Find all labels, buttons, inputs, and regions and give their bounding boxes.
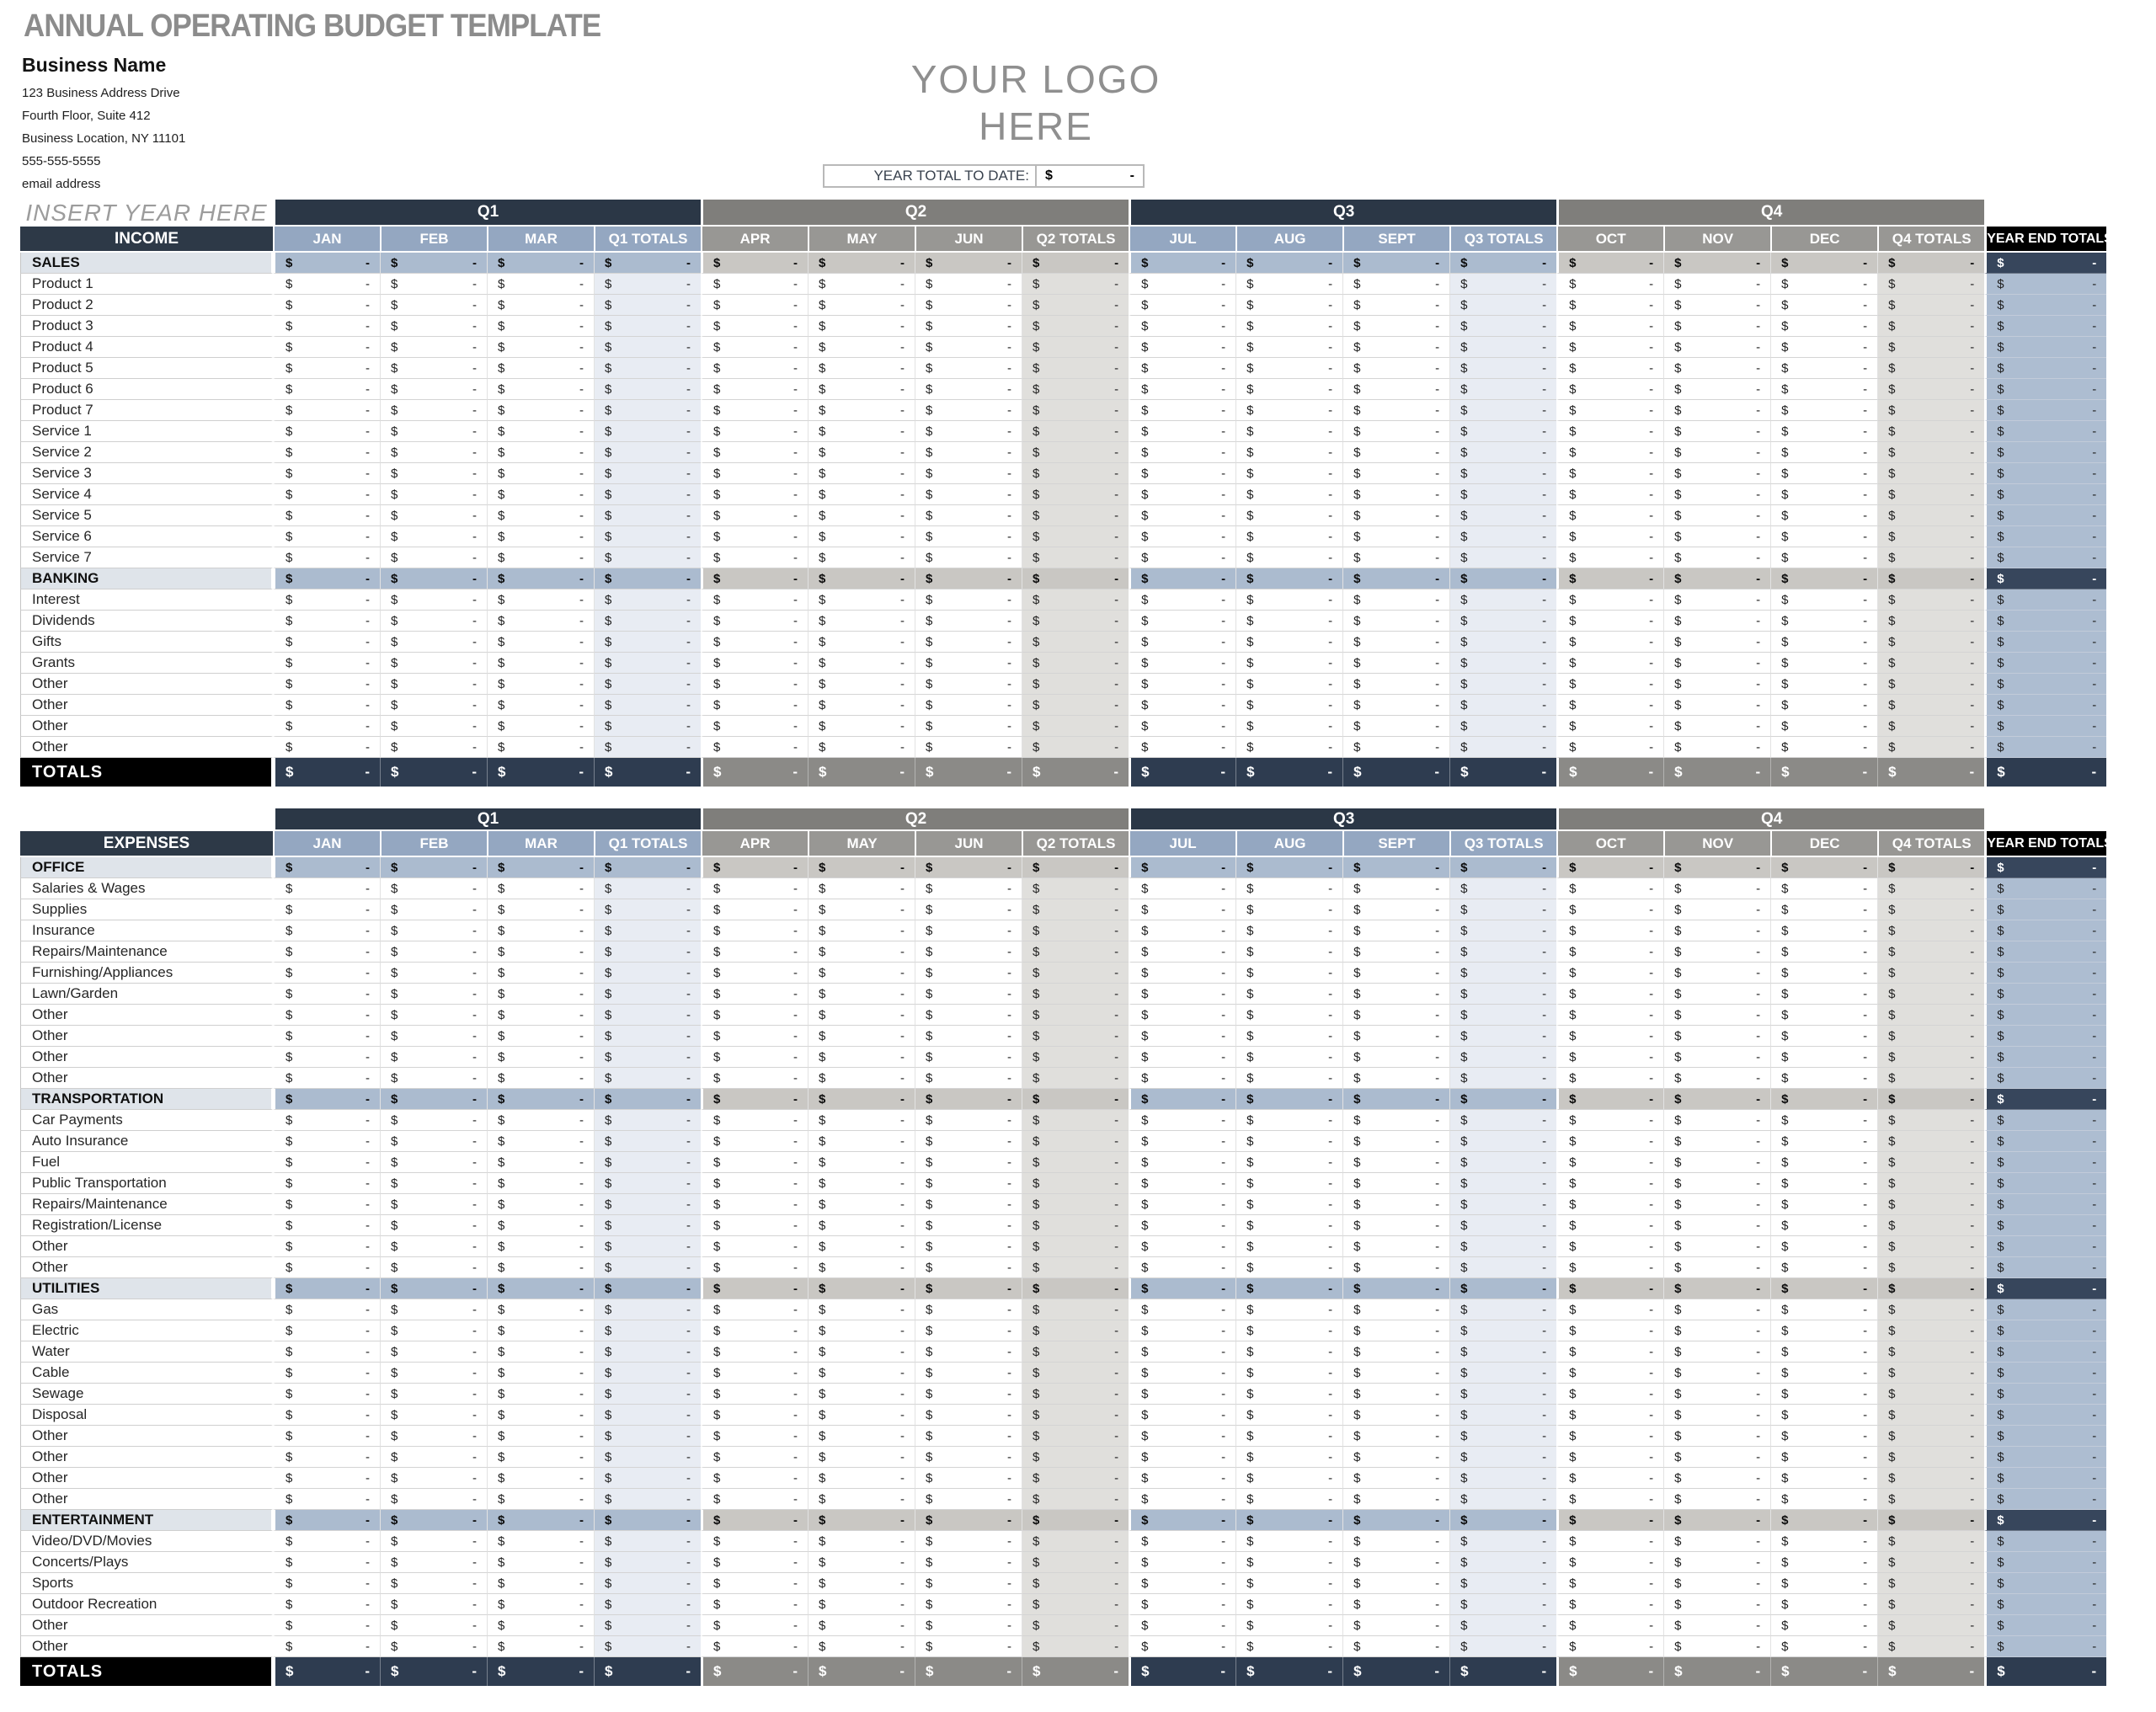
section-money-cell[interactable]: $-: [1129, 1278, 1235, 1299]
money-cell[interactable]: $-: [1556, 421, 1663, 442]
money-cell[interactable]: $-: [1663, 878, 1770, 899]
money-cell[interactable]: $-: [1770, 1384, 1877, 1405]
row-label[interactable]: Cable: [20, 1363, 273, 1384]
section-money-cell[interactable]: $-: [1129, 1089, 1235, 1110]
section-year-end-cell[interactable]: $-: [1984, 253, 2106, 274]
money-cell[interactable]: $-: [380, 547, 487, 568]
row-label[interactable]: Gas: [20, 1299, 273, 1320]
money-cell[interactable]: $-: [1129, 442, 1235, 463]
quarter-total-cell[interactable]: $-: [1877, 984, 1984, 1005]
money-cell[interactable]: $-: [273, 1341, 380, 1363]
section-money-cell[interactable]: $-: [594, 1510, 701, 1531]
quarter-total-cell[interactable]: $-: [1449, 1110, 1556, 1131]
section-money-cell[interactable]: $-: [487, 1510, 594, 1531]
quarter-total-cell[interactable]: $-: [1449, 899, 1556, 920]
quarter-total-cell[interactable]: $-: [1877, 1426, 1984, 1447]
money-cell[interactable]: $-: [1770, 1594, 1877, 1615]
money-cell[interactable]: $-: [487, 963, 594, 984]
money-cell[interactable]: $-: [1663, 1341, 1770, 1363]
quarter-total-cell[interactable]: $-: [594, 295, 701, 316]
quarter-total-cell[interactable]: $-: [1022, 1194, 1129, 1215]
money-cell[interactable]: $-: [1235, 1384, 1342, 1405]
money-cell[interactable]: $-: [273, 1005, 380, 1026]
money-cell[interactable]: $-: [1663, 611, 1770, 632]
quarter-total-cell[interactable]: $-: [1449, 1363, 1556, 1384]
money-cell[interactable]: $-: [808, 1636, 915, 1657]
money-cell[interactable]: $-: [273, 632, 380, 653]
money-cell[interactable]: $-: [701, 1152, 808, 1173]
money-cell[interactable]: $-: [487, 1405, 594, 1426]
money-cell[interactable]: $-: [1342, 1594, 1449, 1615]
money-cell[interactable]: $-: [1556, 1573, 1663, 1594]
money-cell[interactable]: $-: [915, 1447, 1022, 1468]
quarter-total-cell[interactable]: $-: [1449, 1152, 1556, 1173]
row-label[interactable]: Product 1: [20, 274, 273, 295]
section-money-cell[interactable]: $-: [487, 1278, 594, 1299]
money-cell[interactable]: $-: [915, 1194, 1022, 1215]
money-cell[interactable]: $-: [1663, 1615, 1770, 1636]
money-cell[interactable]: $-: [1342, 526, 1449, 547]
money-cell[interactable]: $-: [701, 1531, 808, 1552]
money-cell[interactable]: $-: [380, 526, 487, 547]
money-cell[interactable]: $-: [1342, 963, 1449, 984]
money-cell[interactable]: $-: [701, 1405, 808, 1426]
money-cell[interactable]: $-: [1342, 358, 1449, 379]
money-cell[interactable]: $-: [701, 1341, 808, 1363]
money-cell[interactable]: $-: [1129, 878, 1235, 899]
money-cell[interactable]: $-: [380, 316, 487, 337]
money-cell[interactable]: $-: [701, 1489, 808, 1510]
quarter-total-cell[interactable]: $-: [1022, 463, 1129, 484]
money-cell[interactable]: $-: [701, 379, 808, 400]
quarter-total-cell[interactable]: $-: [1022, 442, 1129, 463]
money-cell[interactable]: $-: [1556, 1594, 1663, 1615]
row-label[interactable]: Gifts: [20, 632, 273, 653]
money-cell[interactable]: $-: [1342, 1405, 1449, 1426]
money-cell[interactable]: $-: [1129, 1299, 1235, 1320]
totals-money-cell[interactable]: $-: [1022, 1657, 1129, 1686]
money-cell[interactable]: $-: [487, 1194, 594, 1215]
row-label[interactable]: Other: [20, 1236, 273, 1257]
quarter-total-cell[interactable]: $-: [1877, 1552, 1984, 1573]
quarter-total-cell[interactable]: $-: [594, 632, 701, 653]
section-money-cell[interactable]: $-: [915, 1089, 1022, 1110]
section-money-cell[interactable]: $-: [808, 857, 915, 878]
section-money-cell[interactable]: $-: [380, 568, 487, 589]
money-cell[interactable]: $-: [915, 984, 1022, 1005]
money-cell[interactable]: $-: [1129, 1110, 1235, 1131]
year-end-cell[interactable]: $-: [1984, 1194, 2106, 1215]
year-end-cell[interactable]: $-: [1984, 878, 2106, 899]
quarter-total-cell[interactable]: $-: [1022, 1173, 1129, 1194]
year-end-cell[interactable]: $-: [1984, 963, 2106, 984]
money-cell[interactable]: $-: [380, 1215, 487, 1236]
row-label[interactable]: Other: [20, 674, 273, 695]
quarter-total-cell[interactable]: $-: [594, 1615, 701, 1636]
money-cell[interactable]: $-: [1556, 274, 1663, 295]
money-cell[interactable]: $-: [1129, 941, 1235, 963]
row-label[interactable]: Electric: [20, 1320, 273, 1341]
money-cell[interactable]: $-: [1342, 274, 1449, 295]
totals-money-cell[interactable]: $-: [594, 758, 701, 787]
totals-money-cell[interactable]: $-: [701, 1657, 808, 1686]
year-end-cell[interactable]: $-: [1984, 1531, 2106, 1552]
money-cell[interactable]: $-: [487, 1068, 594, 1089]
money-cell[interactable]: $-: [808, 611, 915, 632]
money-cell[interactable]: $-: [1342, 400, 1449, 421]
money-cell[interactable]: $-: [808, 1152, 915, 1173]
quarter-total-cell[interactable]: $-: [1449, 1531, 1556, 1552]
money-cell[interactable]: $-: [380, 632, 487, 653]
money-cell[interactable]: $-: [808, 1257, 915, 1278]
quarter-total-cell[interactable]: $-: [1022, 1405, 1129, 1426]
quarter-total-cell[interactable]: $-: [1877, 589, 1984, 611]
quarter-total-cell[interactable]: $-: [1877, 505, 1984, 526]
money-cell[interactable]: $-: [380, 920, 487, 941]
money-cell[interactable]: $-: [487, 379, 594, 400]
money-cell[interactable]: $-: [1235, 1426, 1342, 1447]
money-cell[interactable]: $-: [273, 1615, 380, 1636]
money-cell[interactable]: $-: [915, 526, 1022, 547]
year-end-cell[interactable]: $-: [1984, 1152, 2106, 1173]
money-cell[interactable]: $-: [915, 421, 1022, 442]
money-cell[interactable]: $-: [1663, 1236, 1770, 1257]
section-money-cell[interactable]: $-: [1663, 253, 1770, 274]
money-cell[interactable]: $-: [380, 716, 487, 737]
section-money-cell[interactable]: $-: [273, 1278, 380, 1299]
money-cell[interactable]: $-: [1556, 1236, 1663, 1257]
money-cell[interactable]: $-: [487, 1047, 594, 1068]
money-cell[interactable]: $-: [915, 1426, 1022, 1447]
money-cell[interactable]: $-: [1556, 737, 1663, 758]
quarter-total-cell[interactable]: $-: [1877, 1468, 1984, 1489]
money-cell[interactable]: $-: [1342, 1426, 1449, 1447]
section-money-cell[interactable]: $-: [1022, 1510, 1129, 1531]
section-money-cell[interactable]: $-: [915, 1278, 1022, 1299]
money-cell[interactable]: $-: [273, 1636, 380, 1657]
quarter-total-cell[interactable]: $-: [1877, 442, 1984, 463]
section-money-cell[interactable]: $-: [1770, 253, 1877, 274]
money-cell[interactable]: $-: [808, 1489, 915, 1510]
money-cell[interactable]: $-: [487, 899, 594, 920]
money-cell[interactable]: $-: [1235, 1468, 1342, 1489]
section-money-cell[interactable]: $-: [1877, 1278, 1984, 1299]
year-end-cell[interactable]: $-: [1984, 295, 2106, 316]
quarter-total-cell[interactable]: $-: [594, 1384, 701, 1405]
money-cell[interactable]: $-: [808, 1363, 915, 1384]
money-cell[interactable]: $-: [915, 400, 1022, 421]
section-money-cell[interactable]: $-: [915, 1510, 1022, 1531]
money-cell[interactable]: $-: [1235, 611, 1342, 632]
money-cell[interactable]: $-: [1663, 653, 1770, 674]
section-money-cell[interactable]: $-: [1235, 253, 1342, 274]
business-address-line[interactable]: 123 Business Address Drive: [22, 86, 185, 100]
quarter-total-cell[interactable]: $-: [1449, 505, 1556, 526]
money-cell[interactable]: $-: [1556, 358, 1663, 379]
money-cell[interactable]: $-: [701, 878, 808, 899]
quarter-total-cell[interactable]: $-: [1449, 337, 1556, 358]
money-cell[interactable]: $-: [1235, 1236, 1342, 1257]
row-label[interactable]: Other: [20, 1047, 273, 1068]
money-cell[interactable]: $-: [1129, 1615, 1235, 1636]
money-cell[interactable]: $-: [1556, 316, 1663, 337]
money-cell[interactable]: $-: [487, 1426, 594, 1447]
year-end-cell[interactable]: $-: [1984, 589, 2106, 611]
money-cell[interactable]: $-: [1129, 274, 1235, 295]
quarter-total-cell[interactable]: $-: [1022, 1363, 1129, 1384]
quarter-total-cell[interactable]: $-: [594, 505, 701, 526]
money-cell[interactable]: $-: [1235, 1363, 1342, 1384]
quarter-total-cell[interactable]: $-: [1022, 1447, 1129, 1468]
money-cell[interactable]: $-: [1235, 337, 1342, 358]
money-cell[interactable]: $-: [701, 316, 808, 337]
row-label[interactable]: Dividends: [20, 611, 273, 632]
money-cell[interactable]: $-: [487, 878, 594, 899]
money-cell[interactable]: $-: [487, 547, 594, 568]
quarter-total-cell[interactable]: $-: [1877, 1489, 1984, 1510]
money-cell[interactable]: $-: [1556, 1026, 1663, 1047]
money-cell[interactable]: $-: [380, 1110, 487, 1131]
money-cell[interactable]: $-: [1663, 1405, 1770, 1426]
money-cell[interactable]: $-: [380, 400, 487, 421]
money-cell[interactable]: $-: [380, 1320, 487, 1341]
money-cell[interactable]: $-: [1663, 316, 1770, 337]
money-cell[interactable]: $-: [701, 1426, 808, 1447]
row-label[interactable]: Service 3: [20, 463, 273, 484]
money-cell[interactable]: $-: [273, 526, 380, 547]
row-label[interactable]: Other: [20, 1468, 273, 1489]
money-cell[interactable]: $-: [380, 484, 487, 505]
quarter-total-cell[interactable]: $-: [1022, 421, 1129, 442]
section-label-transportation[interactable]: TRANSPORTATION: [20, 1089, 273, 1110]
quarter-total-cell[interactable]: $-: [1022, 1636, 1129, 1657]
section-money-cell[interactable]: $-: [701, 568, 808, 589]
year-end-cell[interactable]: $-: [1984, 984, 2106, 1005]
quarter-total-cell[interactable]: $-: [1877, 1257, 1984, 1278]
money-cell[interactable]: $-: [1556, 1636, 1663, 1657]
quarter-total-cell[interactable]: $-: [594, 899, 701, 920]
money-cell[interactable]: $-: [915, 1405, 1022, 1426]
money-cell[interactable]: $-: [1556, 1194, 1663, 1215]
money-cell[interactable]: $-: [1770, 1447, 1877, 1468]
row-label[interactable]: Other: [20, 1615, 273, 1636]
quarter-total-cell[interactable]: $-: [594, 963, 701, 984]
money-cell[interactable]: $-: [487, 316, 594, 337]
section-money-cell[interactable]: $-: [808, 1510, 915, 1531]
money-cell[interactable]: $-: [273, 674, 380, 695]
money-cell[interactable]: $-: [1129, 421, 1235, 442]
money-cell[interactable]: $-: [1663, 920, 1770, 941]
quarter-total-cell[interactable]: $-: [1449, 1236, 1556, 1257]
section-money-cell[interactable]: $-: [1556, 1089, 1663, 1110]
money-cell[interactable]: $-: [487, 1110, 594, 1131]
year-end-cell[interactable]: $-: [1984, 941, 2106, 963]
money-cell[interactable]: $-: [701, 1236, 808, 1257]
quarter-total-cell[interactable]: $-: [594, 653, 701, 674]
money-cell[interactable]: $-: [1770, 737, 1877, 758]
money-cell[interactable]: $-: [380, 963, 487, 984]
money-cell[interactable]: $-: [273, 1320, 380, 1341]
money-cell[interactable]: $-: [1342, 1173, 1449, 1194]
section-money-cell[interactable]: $-: [808, 568, 915, 589]
money-cell[interactable]: $-: [1556, 1131, 1663, 1152]
quarter-total-cell[interactable]: $-: [1449, 716, 1556, 737]
money-cell[interactable]: $-: [1342, 337, 1449, 358]
quarter-total-cell[interactable]: $-: [1022, 963, 1129, 984]
quarter-total-cell[interactable]: $-: [1022, 1320, 1129, 1341]
year-end-cell[interactable]: $-: [1984, 1552, 2106, 1573]
money-cell[interactable]: $-: [808, 695, 915, 716]
business-phone[interactable]: 555-555-5555: [22, 154, 185, 168]
money-cell[interactable]: $-: [273, 589, 380, 611]
quarter-total-cell[interactable]: $-: [1022, 1005, 1129, 1026]
quarter-total-cell[interactable]: $-: [1449, 1636, 1556, 1657]
money-cell[interactable]: $-: [1342, 1384, 1449, 1405]
money-cell[interactable]: $-: [1663, 1489, 1770, 1510]
quarter-total-cell[interactable]: $-: [594, 695, 701, 716]
money-cell[interactable]: $-: [380, 1489, 487, 1510]
money-cell[interactable]: $-: [487, 1257, 594, 1278]
money-cell[interactable]: $-: [380, 1384, 487, 1405]
year-end-cell[interactable]: $-: [1984, 695, 2106, 716]
year-end-cell[interactable]: $-: [1984, 1110, 2106, 1131]
section-money-cell[interactable]: $-: [1877, 568, 1984, 589]
totals-money-cell[interactable]: $-: [1877, 1657, 1984, 1686]
row-label[interactable]: Product 3: [20, 316, 273, 337]
section-money-cell[interactable]: $-: [1770, 1278, 1877, 1299]
section-money-cell[interactable]: $-: [1129, 253, 1235, 274]
money-cell[interactable]: $-: [701, 1636, 808, 1657]
money-cell[interactable]: $-: [915, 379, 1022, 400]
quarter-total-cell[interactable]: $-: [594, 1636, 701, 1657]
money-cell[interactable]: $-: [1770, 878, 1877, 899]
row-label[interactable]: Service 2: [20, 442, 273, 463]
money-cell[interactable]: $-: [1663, 1384, 1770, 1405]
quarter-total-cell[interactable]: $-: [1022, 589, 1129, 611]
money-cell[interactable]: $-: [915, 1341, 1022, 1363]
quarter-total-cell[interactable]: $-: [594, 1531, 701, 1552]
quarter-total-cell[interactable]: $-: [1877, 1131, 1984, 1152]
money-cell[interactable]: $-: [915, 1110, 1022, 1131]
money-cell[interactable]: $-: [273, 920, 380, 941]
money-cell[interactable]: $-: [487, 1594, 594, 1615]
money-cell[interactable]: $-: [487, 463, 594, 484]
money-cell[interactable]: $-: [915, 1489, 1022, 1510]
money-cell[interactable]: $-: [1663, 1531, 1770, 1552]
money-cell[interactable]: $-: [1770, 442, 1877, 463]
year-end-cell[interactable]: $-: [1984, 316, 2106, 337]
year-total-value-cell[interactable]: $ -: [1035, 166, 1143, 186]
totals-money-cell[interactable]: $-: [1022, 758, 1129, 787]
year-end-cell[interactable]: $-: [1984, 1405, 2106, 1426]
money-cell[interactable]: $-: [1770, 358, 1877, 379]
money-cell[interactable]: $-: [1556, 1215, 1663, 1236]
section-money-cell[interactable]: $-: [1235, 1510, 1342, 1531]
money-cell[interactable]: $-: [273, 1531, 380, 1552]
quarter-total-cell[interactable]: $-: [1449, 674, 1556, 695]
year-end-cell[interactable]: $-: [1984, 1594, 2106, 1615]
money-cell[interactable]: $-: [808, 1384, 915, 1405]
totals-money-cell[interactable]: $-: [1770, 1657, 1877, 1686]
money-cell[interactable]: $-: [1129, 484, 1235, 505]
money-cell[interactable]: $-: [1235, 1552, 1342, 1573]
row-label[interactable]: Disposal: [20, 1405, 273, 1426]
money-cell[interactable]: $-: [808, 505, 915, 526]
money-cell[interactable]: $-: [1129, 526, 1235, 547]
money-cell[interactable]: $-: [487, 1489, 594, 1510]
money-cell[interactable]: $-: [1770, 484, 1877, 505]
totals-money-cell[interactable]: $-: [1449, 1657, 1556, 1686]
money-cell[interactable]: $-: [1129, 1405, 1235, 1426]
money-cell[interactable]: $-: [1129, 589, 1235, 611]
quarter-total-cell[interactable]: $-: [594, 1194, 701, 1215]
year-end-cell[interactable]: $-: [1984, 526, 2106, 547]
money-cell[interactable]: $-: [1663, 737, 1770, 758]
money-cell[interactable]: $-: [1770, 1215, 1877, 1236]
section-money-cell[interactable]: $-: [1129, 568, 1235, 589]
money-cell[interactable]: $-: [273, 1152, 380, 1173]
section-money-cell[interactable]: $-: [1235, 1089, 1342, 1110]
money-cell[interactable]: $-: [808, 1552, 915, 1573]
money-cell[interactable]: $-: [273, 316, 380, 337]
money-cell[interactable]: $-: [1770, 1005, 1877, 1026]
quarter-total-cell[interactable]: $-: [1877, 1026, 1984, 1047]
money-cell[interactable]: $-: [1129, 1215, 1235, 1236]
money-cell[interactable]: $-: [1342, 984, 1449, 1005]
quarter-total-cell[interactable]: $-: [1449, 1173, 1556, 1194]
money-cell[interactable]: $-: [701, 1447, 808, 1468]
money-cell[interactable]: $-: [701, 1068, 808, 1089]
totals-money-cell[interactable]: $-: [808, 1657, 915, 1686]
money-cell[interactable]: $-: [1663, 1131, 1770, 1152]
money-cell[interactable]: $-: [1342, 611, 1449, 632]
money-cell[interactable]: $-: [487, 442, 594, 463]
quarter-total-cell[interactable]: $-: [1449, 984, 1556, 1005]
money-cell[interactable]: $-: [1770, 1552, 1877, 1573]
money-cell[interactable]: $-: [1342, 1363, 1449, 1384]
money-cell[interactable]: $-: [701, 653, 808, 674]
totals-money-cell[interactable]: $-: [1235, 1657, 1342, 1686]
money-cell[interactable]: $-: [273, 695, 380, 716]
money-cell[interactable]: $-: [1663, 1320, 1770, 1341]
totals-money-cell[interactable]: $-: [1770, 758, 1877, 787]
section-money-cell[interactable]: $-: [594, 1278, 701, 1299]
money-cell[interactable]: $-: [1342, 463, 1449, 484]
section-money-cell[interactable]: $-: [487, 568, 594, 589]
quarter-total-cell[interactable]: $-: [1449, 1468, 1556, 1489]
money-cell[interactable]: $-: [808, 1068, 915, 1089]
totals-money-cell[interactable]: $-: [1877, 758, 1984, 787]
money-cell[interactable]: $-: [380, 1152, 487, 1173]
row-label[interactable]: Auto Insurance: [20, 1131, 273, 1152]
quarter-total-cell[interactable]: $-: [1022, 1531, 1129, 1552]
quarter-total-cell[interactable]: $-: [1449, 526, 1556, 547]
money-cell[interactable]: $-: [808, 1236, 915, 1257]
section-year-end-cell[interactable]: $-: [1984, 1278, 2106, 1299]
money-cell[interactable]: $-: [1770, 1426, 1877, 1447]
money-cell[interactable]: $-: [808, 1573, 915, 1594]
money-cell[interactable]: $-: [1235, 1005, 1342, 1026]
quarter-total-cell[interactable]: $-: [1022, 505, 1129, 526]
row-label[interactable]: Furnishing/Appliances: [20, 963, 273, 984]
quarter-total-cell[interactable]: $-: [1877, 295, 1984, 316]
money-cell[interactable]: $-: [915, 1552, 1022, 1573]
money-cell[interactable]: $-: [808, 316, 915, 337]
section-money-cell[interactable]: $-: [1342, 1510, 1449, 1531]
money-cell[interactable]: $-: [487, 674, 594, 695]
money-cell[interactable]: $-: [1770, 1047, 1877, 1068]
quarter-total-cell[interactable]: $-: [594, 1341, 701, 1363]
